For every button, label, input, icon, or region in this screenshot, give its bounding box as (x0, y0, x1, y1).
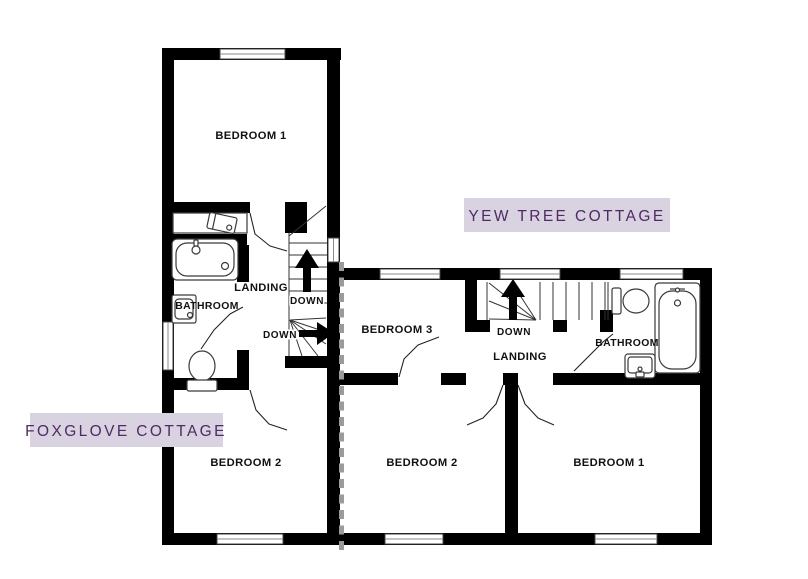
wall-segment (700, 268, 712, 545)
window (595, 534, 657, 544)
window (380, 269, 440, 279)
yewtree-badge-label: YEW TREE COTTAGE (468, 208, 665, 225)
foxglove-closet (173, 212, 247, 233)
yewtree-sink-icon (625, 354, 655, 378)
wall-segment (503, 373, 518, 385)
wall-segment (465, 320, 490, 332)
room-label-bedroom2: BEDROOM 2 (210, 457, 281, 469)
wall-segment (553, 320, 567, 332)
window (620, 269, 683, 279)
door-arc (399, 337, 439, 377)
yewtree-staircase (487, 282, 608, 320)
door-arc (467, 385, 503, 425)
room-label-bedroom2: BEDROOM 2 (386, 457, 457, 469)
wall-segment (285, 202, 307, 233)
yewtree-toilet-icon (612, 288, 649, 314)
room-label-bathroom: BATHROOM (595, 338, 659, 349)
door-arc (201, 307, 243, 349)
wall-segment (441, 373, 466, 385)
room-label-bedroom1: BEDROOM 1 (573, 457, 644, 469)
window (385, 534, 443, 544)
window (328, 238, 339, 262)
foxglove-toilet-icon (187, 351, 217, 391)
door-arc (250, 213, 287, 251)
floorplan-page: BEDROOM 1 LANDING BATHROOM BEDROOM 2 DOW… (0, 0, 808, 579)
wall-segment (600, 310, 613, 332)
room-label-bathroom: BATHROOM (175, 301, 239, 312)
yewtree-walls (327, 268, 712, 545)
wall-segment (505, 385, 518, 533)
room-label-bedroom1: BEDROOM 1 (215, 130, 286, 142)
yewtree-badge: YEW TREE COTTAGE (464, 198, 670, 232)
room-label-landing: LANDING (234, 282, 288, 294)
wall-segment (162, 202, 250, 213)
wall-segment (237, 245, 249, 282)
window (220, 49, 285, 59)
window (500, 269, 560, 279)
window (163, 322, 173, 370)
yewtree-cottage-plan: BEDROOM 3 LANDING BATHROOM BEDROOM 2 BED… (327, 268, 712, 545)
stairs-down-label: DOWN (290, 296, 324, 307)
foxglove-badge-label: FOXGLOVE COTTAGE (25, 423, 227, 440)
floorplan-canvas: BEDROOM 1 LANDING BATHROOM BEDROOM 2 DOW… (0, 0, 808, 579)
wall-segment (327, 373, 398, 385)
foxglove-badge: FOXGLOVE COTTAGE (25, 413, 227, 447)
door-arc (518, 385, 554, 425)
wall-segment (327, 48, 340, 545)
foxglove-cottage-plan: BEDROOM 1 LANDING BATHROOM BEDROOM 2 DOW… (162, 48, 341, 545)
stairs-down-label: DOWN (263, 330, 297, 341)
foxglove-bathtub-icon (172, 239, 238, 280)
door-arc (250, 390, 287, 430)
yewtree-bathtub-icon (655, 283, 700, 373)
stairs-down-label: DOWN (497, 327, 531, 338)
room-label-bedroom3: BEDROOM 3 (361, 324, 432, 336)
window (217, 534, 283, 544)
wall-segment (285, 356, 340, 368)
room-label-landing: LANDING (493, 351, 547, 363)
